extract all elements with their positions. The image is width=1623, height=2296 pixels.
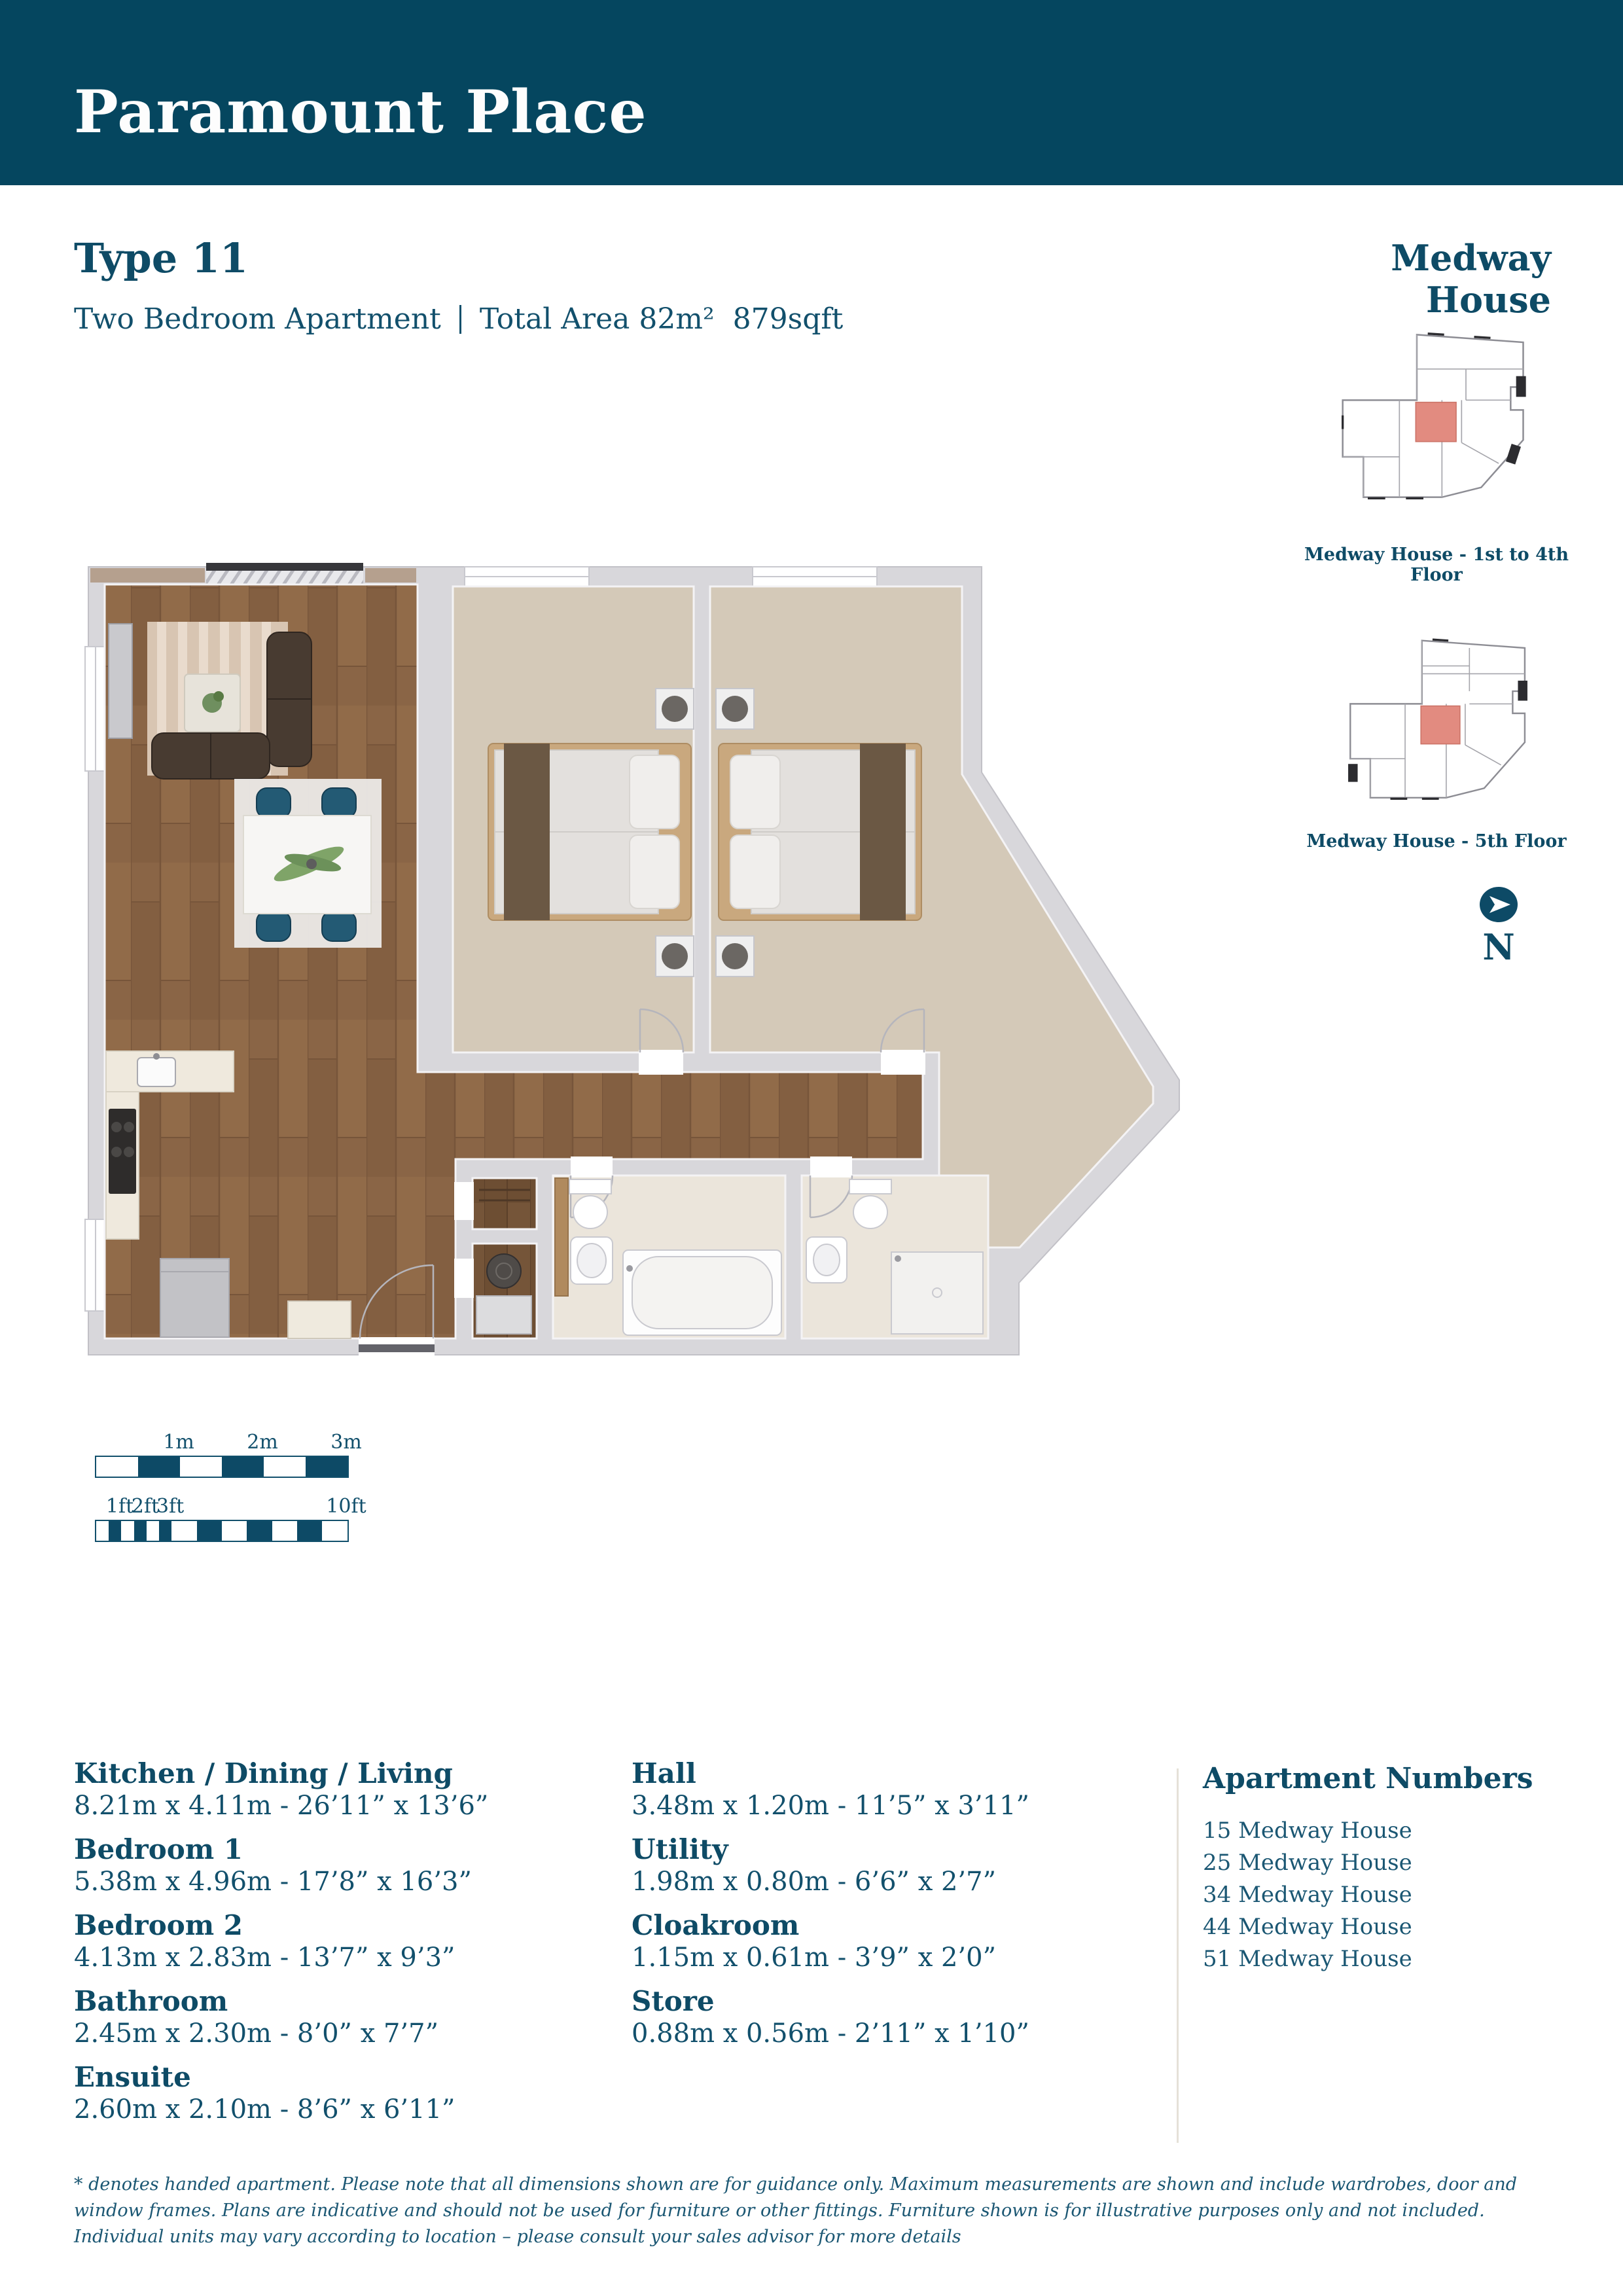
washing-machine	[487, 1254, 521, 1288]
locator-plan-floor-5	[1343, 620, 1533, 827]
room-dims: 1.15m x 0.61m - 3’9” x 2’0”	[632, 1944, 1155, 1971]
room-name: Bedroom 2	[74, 1911, 597, 1940]
north-indicator: N	[1472, 885, 1525, 965]
development-title: Paramount Place	[74, 77, 647, 147]
unit-sqft: 879sqft	[733, 302, 844, 336]
entrance-door	[359, 1344, 435, 1352]
highlighted-apartment	[1416, 403, 1456, 442]
apartment-numbers: Apartment Numbers 15 Medway House 25 Med…	[1203, 1762, 1569, 1975]
room-store	[473, 1178, 537, 1229]
apartment-numbers-list: 15 Medway House 25 Medway House 34 Medwa…	[1203, 1815, 1569, 1975]
subtitle-divider	[459, 305, 461, 334]
metre-scale-labels: 1m 2m 3m	[95, 1431, 370, 1454]
room-name: Ensuite	[74, 2063, 597, 2092]
room-name: Utility	[632, 1835, 1155, 1864]
scale-label-2m: 2m	[247, 1431, 278, 1454]
room-name: Kitchen / Dining / Living	[74, 1759, 597, 1788]
scale-label-1m: 1m	[163, 1431, 194, 1454]
feet-scale-labels: 1ft 2ft 3ft 10ft	[95, 1495, 370, 1518]
ensuite-toilet	[849, 1179, 891, 1194]
disclaimer: * denotes handed apartment. Please note …	[74, 2172, 1554, 2250]
header-band: Paramount Place	[0, 0, 1623, 185]
feet-scale-bar	[95, 1520, 349, 1542]
highlighted-apartment	[1421, 706, 1460, 744]
room-dims: 8.21m x 4.11m - 26’11” x 13’6”	[74, 1792, 597, 1820]
room-dims: 4.13m x 2.83m - 13’7” x 9’3”	[74, 1944, 597, 1971]
locator-caption-2: Medway House - 5th Floor	[1283, 831, 1590, 852]
scale-label-3m: 3m	[330, 1431, 362, 1454]
unit-subtitle: Two Bedroom Apartment Total Area 82m² 87…	[74, 302, 843, 336]
scale-label-3ft: 3ft	[156, 1495, 184, 1518]
room-dims: 2.45m x 2.30m - 8’0” x 7’7”	[74, 2020, 597, 2047]
apartment-item: 15 Medway House	[1203, 1815, 1569, 1847]
column-divider	[1177, 1768, 1179, 2143]
apartment-item: 44 Medway House	[1203, 1911, 1569, 1943]
room-dims: 2.60m x 2.10m - 8’6” x 6’11”	[74, 2096, 597, 2123]
scale-label-10ft: 10ft	[326, 1495, 366, 1518]
kitchen-sink	[137, 1058, 175, 1086]
room-dims: 1.98m x 0.80m - 6’6” x 2’7”	[632, 1868, 1155, 1895]
room-name: Hall	[632, 1759, 1155, 1788]
north-arrow-icon	[1472, 885, 1525, 925]
fridge	[160, 1259, 229, 1337]
unit-type-title: Type 11	[74, 234, 248, 282]
dimensions-column-1: Kitchen / Dining / Living 8.21m x 4.11m …	[74, 1759, 597, 2139]
toilet	[569, 1179, 611, 1194]
room-dims: 0.88m x 0.56m - 2’11” x 1’10”	[632, 2020, 1155, 2047]
unit-bedrooms-label: Two Bedroom Apartment	[74, 302, 441, 336]
scale-label-1ft: 1ft	[106, 1495, 134, 1518]
balcony-rail	[206, 563, 363, 571]
brochure-page: Paramount Place Type 11 Two Bedroom Apar…	[0, 0, 1623, 2296]
room-dims: 3.48m x 1.20m - 11’5” x 3’11”	[632, 1792, 1155, 1820]
scale-label-2ft: 2ft	[132, 1495, 159, 1518]
room-name: Bedroom 1	[74, 1835, 597, 1864]
scale-bars: 1m 2m 3m 1ft 2ft 3ft 10ft	[95, 1431, 370, 1542]
metre-scale-bar	[95, 1456, 349, 1478]
apartment-item: 34 Medway House	[1203, 1879, 1569, 1911]
locator-caption-1: Medway House - 1st to 4th Floor	[1283, 545, 1590, 585]
apartment-item: 25 Medway House	[1203, 1847, 1569, 1879]
shower	[891, 1252, 983, 1334]
apartment-item: 51 Medway House	[1203, 1943, 1569, 1975]
room-name: Cloakroom	[632, 1911, 1155, 1940]
room-name: Bathroom	[74, 1987, 597, 2016]
floorplan	[72, 548, 1191, 1360]
locator-plan-floors-1-4	[1335, 313, 1531, 529]
building-title: Medway House	[1276, 237, 1551, 321]
room-cloakroom	[288, 1301, 351, 1338]
room-name: Store	[632, 1987, 1155, 2016]
room-dims: 5.38m x 4.96m - 17’8” x 16’3”	[74, 1868, 597, 1895]
north-label: N	[1472, 929, 1525, 965]
apartment-numbers-title: Apartment Numbers	[1203, 1762, 1569, 1795]
unit-total-area: Total Area 82m²	[480, 302, 715, 336]
dimensions-column-2: Hall 3.48m x 1.20m - 11’5” x 3’11” Utili…	[632, 1759, 1155, 2063]
